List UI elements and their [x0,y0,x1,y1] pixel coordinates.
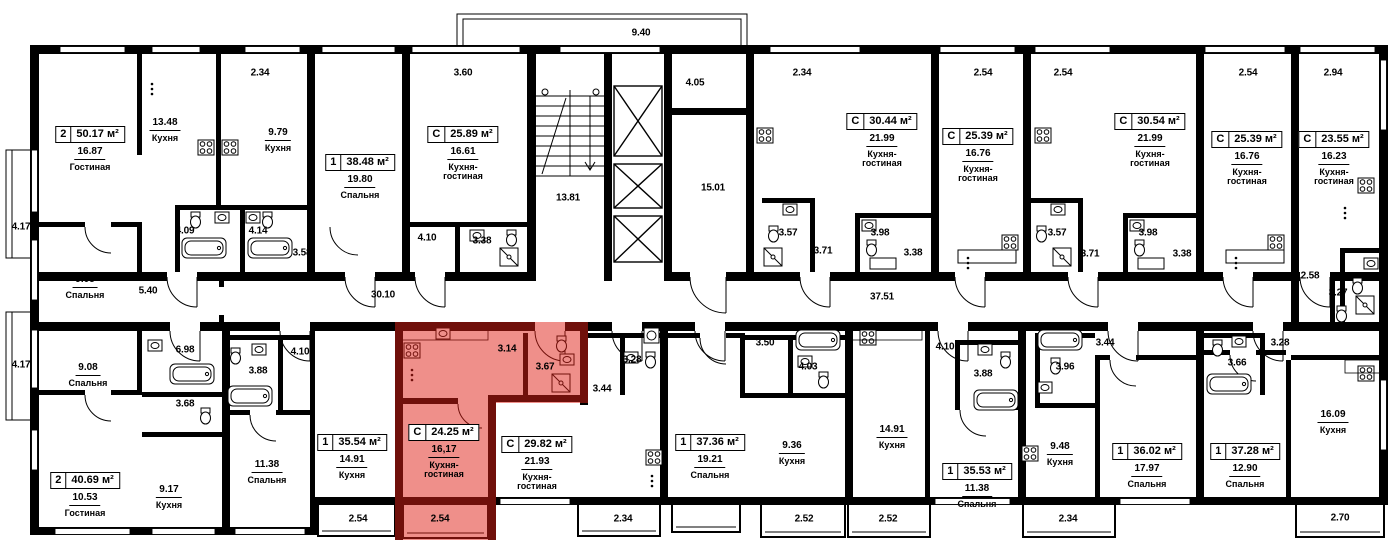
room-area: 21.99 [1134,131,1165,147]
dim-label: 2.34 [793,68,812,79]
apartment-label-selected[interactable]: С24.25 м² 16,17 Кухня- гостиная [408,424,479,479]
apartment-area: 37.28 м² [1226,444,1278,459]
dim-label: 3.60 [454,68,473,79]
apartment-label[interactable]: С30.44 м² 21.99 Кухня- гостиная [846,113,917,168]
dim-label: 3.38 [473,236,492,247]
apartment-type: 1 [1113,444,1128,459]
dim-label: 2.34 [251,68,270,79]
apartment-badge: С30.44 м² [846,113,917,130]
room-area: 12.90 [1229,461,1260,477]
apartment-area: 23.55 м² [1316,132,1368,147]
apartment-area: 36.02 м² [1128,444,1180,459]
dim-label: 3.14 [498,344,517,355]
room-area: 14.91 [336,452,367,468]
apartment-label[interactable]: 135.53 м² 11.38 Спальня [942,463,1012,509]
dim-label: 3.28 [623,355,642,366]
dim-label: 4.05 [686,78,705,89]
apartment-area: 37.36 м² [691,435,743,450]
dim-label: 2.52 [879,514,898,525]
room-name: Кухня- гостиная [862,150,902,168]
room-name: Спальня [958,500,997,509]
room-name: Спальня [1226,480,1265,489]
floor-plan: 250.17 м² 16.87 Гостиная 138.48 м² 19.80… [0,0,1396,547]
room-name: Спальня [341,191,380,200]
dim-label: 3.98 [1139,228,1158,239]
apartment-badge: С25.89 м² [427,126,498,143]
apartment-label[interactable]: 135.54 м² 14.91 Кухня [317,434,387,480]
apartment-badge: С29.82 м² [501,436,572,453]
room-label: 14.91Кухня [876,420,907,450]
room-area: 16.76 [962,146,993,162]
dim-label: 3.96 [1056,362,1075,373]
apartment-type: С [428,127,445,142]
dim-label: 4.17 [12,360,31,371]
room-area: 21.93 [521,454,552,470]
room-name: Спальня [1128,480,1167,489]
room-area: 10.53 [69,490,100,506]
apartment-type: 1 [1211,444,1226,459]
room-area: 16.87 [74,144,105,160]
dim-label: 3.66 [1228,358,1247,369]
dim-label: 3.38 [904,248,923,259]
apartment-label[interactable]: С25.89 м² 16.61 Кухня- гостиная [427,126,498,181]
room-name: Кухня- гостиная [424,461,464,479]
room-label: 9.08Спальня [66,270,105,300]
apartment-badge: 240.69 м² [50,472,120,489]
apartment-badge: 135.54 м² [317,434,387,451]
dim-label: 4.10 [291,347,310,358]
apartment-area: 29.82 м² [519,437,571,452]
room-area: 16,17 [428,442,459,458]
apartment-area: 35.54 м² [333,435,385,450]
room-label: 9.79Кухня [265,123,291,153]
apartment-badge: 250.17 м² [55,126,125,143]
apartment-badge: С25.39 м² [942,128,1013,145]
dim-label: 3.28 [1271,338,1290,349]
dim-label: 9.40 [632,28,651,39]
apartment-badge: С30.54 м² [1114,113,1185,130]
dim-label: 3.71 [814,246,833,257]
dim-label: 2.54 [349,514,368,525]
dim-label: 4.09 [176,226,195,237]
dim-label: 5.40 [139,286,158,297]
apartment-label[interactable]: 138.48 м² 19.80 Спальня [325,154,395,200]
stairs [536,89,604,176]
room-name: Гостиная [65,509,106,518]
dim-label: 4.03 [799,362,818,373]
room-name: Спальня [691,471,730,480]
apartment-area: 25.89 м² [445,127,497,142]
apartment-label[interactable]: 240.69 м² 10.53 Гостиная [50,472,120,518]
dim-label: 3.57 [779,228,798,239]
room-area: 21.99 [866,131,897,147]
dim-label: 3.71 [1081,249,1100,260]
apartment-badge: 135.53 м² [942,463,1012,480]
dim-label: 2.34 [614,514,633,525]
elevators [614,86,662,262]
apartment-badge: С25.39 м² [1211,131,1282,148]
apartment-type: С [502,437,519,452]
apartment-area: 25.39 м² [960,129,1012,144]
room-area: 17.97 [1131,461,1162,477]
apartment-label[interactable]: С23.55 м² 16.23 Кухня- гостиная [1298,131,1369,186]
dim-label: 2.52 [795,514,814,525]
room-label: 11.38Спальня [248,455,287,485]
room-area: 16.61 [447,144,478,160]
dim-label: 2.54 [974,68,993,79]
room-area: 11.38 [962,481,992,497]
dim-label: 3.58 [293,248,312,259]
apartment-type: С [1212,132,1229,147]
dim-label: 2.94 [1324,68,1343,79]
room-area: 19.21 [694,452,725,468]
dim-label: 4.10 [936,342,955,353]
room-name: Кухня [339,471,365,480]
apartment-type: С [847,114,864,129]
apartment-type: С [409,425,426,440]
room-label: 9.48Кухня [1047,437,1073,467]
dim-label: 15.01 [701,183,725,194]
apartment-label[interactable]: 137.36 м² 19.21 Спальня [675,434,745,480]
dim-label: 3.98 [871,228,890,239]
apartment-type: 1 [326,155,341,170]
room-label: 9.36Кухня [779,436,805,466]
room-name: Кухня- гостиная [517,473,557,491]
apartment-badge: 136.02 м² [1112,443,1182,460]
room-label: 13.48Кухня [149,113,180,143]
dim-label: 3.68 [176,399,195,410]
apartment-type: 2 [51,473,66,488]
dim-label: 3.50 [756,338,775,349]
dim-label: 2.70 [1331,513,1350,524]
dim-label: 2.54 [1054,68,1073,79]
room-name: Кухня- гостиная [443,163,483,181]
dim-label: 4.14 [249,226,268,237]
apartment-type: С [1115,114,1132,129]
dim-label: 3.88 [249,366,268,377]
dim-label: 3.57 [1048,228,1067,239]
dim-label: 2.54 [1239,68,1258,79]
apartment-area: 40.69 м² [66,473,118,488]
apartment-label[interactable]: 250.17 м² 16.87 Гостиная [55,126,125,172]
room-label: 9.08Спальня [69,358,108,388]
room-name: Кухня- гостиная [1314,168,1354,186]
apartment-type: 1 [943,464,958,479]
apartment-area: 25.39 м² [1229,132,1281,147]
apartment-area: 30.54 м² [1132,114,1184,129]
room-name: Кухня- гостиная [1130,150,1170,168]
apartment-label[interactable]: С25.39 м² 16.76 Кухня- гостиная [1211,131,1282,186]
room-label: 16.09Кухня [1317,405,1348,435]
dim-label: 30.10 [371,290,395,301]
dim-label: 3.88 [974,369,993,380]
apartment-label[interactable]: С29.82 м² 21.93 Кухня- гостиная [501,436,572,491]
dim-label: 4.10 [418,233,437,244]
room-area: 19.80 [344,172,375,188]
apartment-label[interactable]: С25.39 м² 16.76 Кухня- гостиная [942,128,1013,183]
room-area: 16.76 [1231,149,1262,165]
apartment-label[interactable]: С30.54 м² 21.99 Кухня- гостиная [1114,113,1185,168]
apartment-type: С [1299,132,1316,147]
apartment-badge: С23.55 м² [1298,131,1369,148]
room-name: Кухня- гостиная [1227,168,1267,186]
apartment-area: 24.25 м² [426,425,478,440]
apartment-label[interactable]: 136.02 м² 17.97 Спальня [1112,443,1182,489]
apartment-badge: С24.25 м² [408,424,479,441]
apartment-badge: 138.48 м² [325,154,395,171]
dim-label: 6.98 [176,345,195,356]
apartment-area: 35.53 м² [958,464,1010,479]
apartment-area: 30.44 м² [864,114,916,129]
apartment-badge: 137.28 м² [1210,443,1280,460]
dim-label: 3.27 [1329,288,1348,299]
apartment-type: 2 [56,127,71,142]
dim-label: 2.54 [431,514,450,525]
room-label: 9.17Кухня [156,480,182,510]
apartment-badge: 137.36 м² [675,434,745,451]
room-area: 16.23 [1318,149,1349,165]
apartment-type: 1 [676,435,691,450]
room-name: Кухня- гостиная [958,165,998,183]
dim-label: 3.44 [1096,338,1115,349]
dim-label: 2.34 [1059,514,1078,525]
dim-label: 13.81 [556,193,580,204]
dim-label: 3.67 [536,362,555,373]
dim-label: 4.17 [12,222,31,233]
dim-label: 3.44 [593,384,612,395]
apartment-type: 1 [318,435,333,450]
apartment-area: 50.17 м² [71,127,123,142]
dim-label: 2.58 [1301,271,1320,282]
dim-label: 37.51 [870,292,894,303]
apartment-label[interactable]: 137.28 м² 12.90 Спальня [1210,443,1280,489]
room-name: Гостиная [70,163,111,172]
apartment-type: С [943,129,960,144]
apartment-area: 38.48 м² [341,155,393,170]
dim-label: 3.38 [1173,249,1192,260]
